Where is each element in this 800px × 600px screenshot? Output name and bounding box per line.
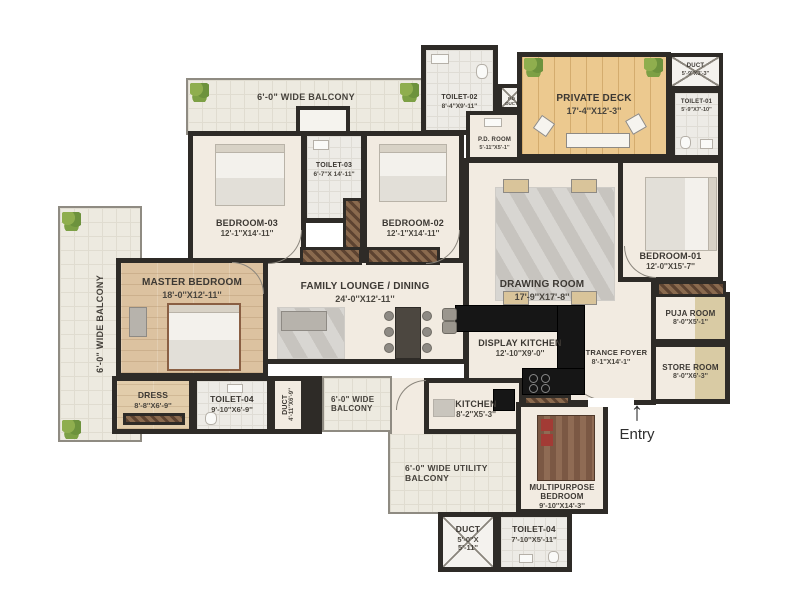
deck-sofa [566,133,630,148]
burner [529,384,538,393]
deck-chair [625,113,647,135]
dining-chair [384,311,394,321]
bed [645,177,717,251]
private-deck: PRIVATE DECK 17'-4''X12'-3'' [517,52,671,159]
wc [476,64,488,79]
deck-chair [533,115,555,137]
sink [227,384,243,393]
dining-chair [422,311,432,321]
wc [548,551,559,563]
room-puja: PUJA ROOM 8'-0''X5'-1'' [651,292,730,344]
armchair [129,307,147,337]
balcony-left-label: 6'-0" WIDE BALCONY [95,275,105,373]
balcony-mid-label: 6'-0" WIDE BALCONY [331,395,383,413]
sink [700,139,713,149]
balcony-mid: 6'-0" WIDE BALCONY [322,376,392,432]
bed [537,415,595,481]
balcony-top-label: 6'-0" WIDE BALCONY [257,92,355,102]
entry-label: Entry [606,426,668,443]
family-lounge: FAMILY LOUNGE / DINING 24'-0''X12'-11'' [262,258,468,364]
sink [519,554,533,563]
room-label: P.D. ROOM 5'-11''X5'-1'' [470,137,519,151]
sink [431,54,449,64]
room-multipurpose: MULTIPURPOSE BEDROOM 9'-10''X14'-3'' [516,402,608,514]
entry-marker: ↑ Entry [606,398,668,443]
bed [167,303,241,371]
duct-bottom: DUCT 5'-0''X 5'-11'' [438,512,498,572]
armchair [503,291,529,305]
dining-chair [422,327,432,337]
pillow [541,419,553,431]
room-pd-room: P.D. ROOM 5'-11''X5'-1'' [466,111,523,161]
duct-top: DUCT 5'-9''X3'-3'' [668,53,723,90]
floor-plan: 6'-0" WIDE BALCONY 6'-0" WIDE BALCONY 6'… [0,0,800,600]
puja-floor [695,297,725,339]
armchair [503,179,529,193]
store-floor [695,347,725,399]
room-toilet-04-bottom: TOILET-04 7'-10''X5'-11'' [496,512,572,572]
burner [541,384,550,393]
sink [313,140,329,150]
room-label: DUCT 5'-0''X 5'-11'' [443,525,493,553]
entry-arrow-icon: ↑ [606,398,668,424]
burner [541,374,550,383]
display-kitchen-hob [522,368,585,395]
room-store: STORE ROOM 8'-0''X6'-3'' [651,342,730,404]
burner [529,374,538,383]
wardrobe [300,247,362,265]
room-toilet-04-master: TOILET-04 9'-10''X6'-9'' [192,376,272,434]
armchair [571,179,597,193]
dining-chair [422,343,432,353]
wardrobe [656,281,726,297]
room-label: FAMILY LOUNGE / DINING 24'-0''X12'-11'' [267,281,463,304]
room-label: TOILET-01 5'-9''X7'-10'' [675,99,718,113]
room-label: MULTIPURPOSE BEDROOM 9'-10''X14'-3'' [521,483,603,511]
drawing-rug [495,187,615,301]
sink-unit [433,399,455,417]
sink [484,118,502,127]
wardrobe [123,413,185,425]
room-label: TOILET-04 7'-10''X5'-11'' [501,525,567,544]
room-toilet-01: TOILET-01 5'-9''X7'-10'' [670,88,723,160]
pillow [541,434,553,446]
stool [442,321,457,334]
stool [442,308,457,321]
room-label: DUCT 4'-11''X6'-9'' [282,388,295,422]
bed [215,144,285,206]
dining-chair [384,343,394,353]
wc [680,136,691,149]
kitchen-counter [493,389,515,411]
lounge-sofa [281,311,327,331]
room-kitchen: KITCHEN 8'-2''X5'-3'' [424,378,524,434]
utility-balcony: 6'-0" WIDE UTILITY BALCONY [388,432,522,514]
room-dress: DRESS 8'-8''X6'-9'' [112,376,194,434]
wall [304,376,322,434]
bed [379,144,447,202]
armchair [571,291,597,305]
wc [205,412,217,425]
dining-chair [384,327,394,337]
room-label: TOILET-03 6'-7''X 14'-11'' [307,162,361,179]
duct-master: DUCT 4'-11''X6'-9'' [270,376,306,434]
room-label: DRESS 8'-8''X6'-9'' [117,391,189,410]
wardrobe [523,395,571,406]
room-label: PRIVATE DECK 17'-4''X12'-3'' [522,93,666,116]
room-label: TOILET-02 8'-4''X9'-11'' [426,94,493,111]
room-label: DUCT 5'-9''X3'-3'' [672,63,719,77]
dining-table [395,307,421,359]
utility-balcony-label: 6'-0" WIDE UTILITY BALCONY [405,463,505,483]
